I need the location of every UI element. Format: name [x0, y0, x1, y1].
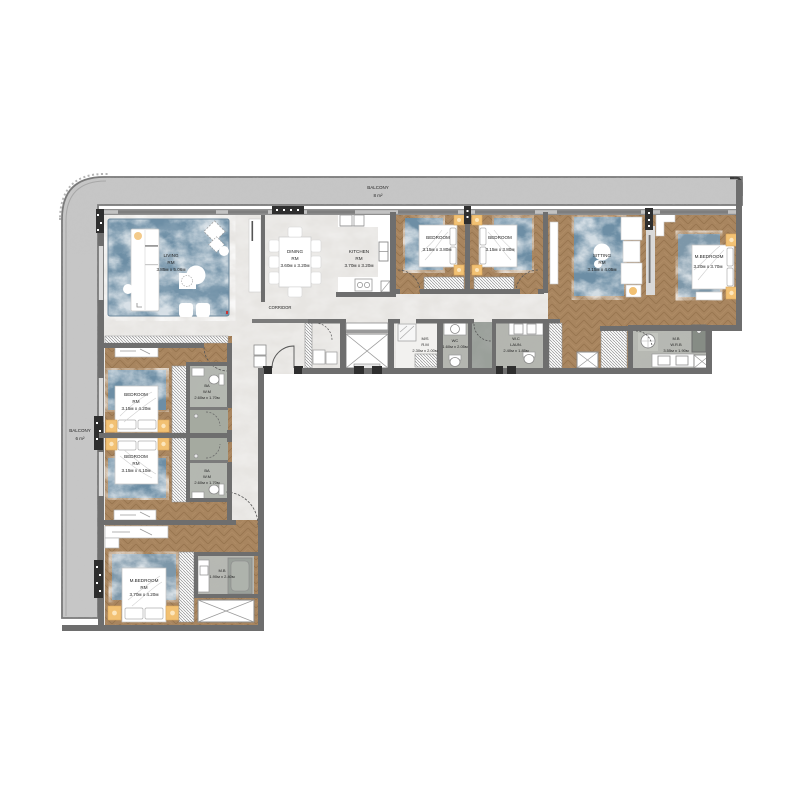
svg-text:KITCHEN: KITCHEN — [349, 249, 369, 254]
svg-text:RM: RM — [598, 260, 605, 265]
svg-text:BEDROOM: BEDROOM — [124, 392, 148, 397]
svg-text:BA: BA — [204, 468, 210, 473]
svg-text:1.60м x 2.05м: 1.60м x 2.05м — [442, 344, 468, 349]
svg-text:RM: RM — [132, 461, 139, 466]
svg-text:M.B: M.B — [218, 568, 225, 573]
svg-text:M.BEDROOM: M.BEDROOM — [130, 578, 159, 583]
svg-text:W.M: W.M — [203, 389, 211, 394]
svg-text:RM: RM — [132, 399, 139, 404]
svg-text:3.20м x 3.70м: 3.20м x 3.70м — [693, 264, 722, 269]
svg-text:LAUN.: LAUN. — [510, 342, 522, 347]
svg-text:2.60м x 1.70м: 2.60м x 1.70м — [194, 395, 220, 400]
svg-text:W.M: W.M — [203, 474, 211, 479]
svg-text:3.70м x 3.20м: 3.70м x 3.20м — [344, 263, 373, 268]
svg-text:3.70м x 4.20м: 3.70м x 4.20м — [129, 592, 158, 597]
svg-text:M.B: M.B — [672, 336, 679, 341]
svg-text:RM: RM — [140, 585, 147, 590]
svg-text:BEDROOM: BEDROOM — [124, 454, 148, 459]
svg-text:W.R.B: W.R.B — [670, 342, 682, 347]
svg-text:SITTING: SITTING — [593, 253, 612, 258]
svg-text:2.60м x 1.70м: 2.60м x 1.70м — [194, 480, 220, 485]
svg-text:3.60м x 3.20м: 3.60м x 3.20м — [280, 263, 309, 268]
svg-text:2.40м x 1.85м: 2.40м x 1.85м — [503, 348, 529, 353]
svg-text:BALCONY: BALCONY — [367, 185, 389, 190]
svg-text:8 m²: 8 m² — [374, 193, 384, 198]
svg-text:6 m²: 6 m² — [76, 436, 86, 441]
svg-text:W.C: W.C — [512, 336, 520, 341]
svg-text:3.15м x 4.20м: 3.15м x 4.20м — [121, 406, 150, 411]
svg-text:BEDROOM: BEDROOM — [488, 235, 512, 240]
svg-text:R.M: R.M — [421, 342, 428, 347]
svg-text:BALCONY: BALCONY — [69, 428, 91, 433]
svg-text:3.15м x 4.05м: 3.15м x 4.05м — [587, 267, 616, 272]
svg-text:BEDROOM: BEDROOM — [426, 235, 450, 240]
svg-text:1.90м x 2.40м: 1.90м x 2.40м — [209, 574, 235, 579]
svg-text:RM: RM — [355, 256, 362, 261]
svg-text:M.BEDROOM: M.BEDROOM — [695, 254, 724, 259]
svg-text:DINING: DINING — [287, 249, 304, 254]
svg-text:3.15м x 4.10м: 3.15м x 4.10м — [121, 468, 150, 473]
svg-text:2.30м x 2.00м: 2.30м x 2.00м — [412, 348, 438, 353]
svg-text:CORRIDOR: CORRIDOR — [269, 305, 292, 310]
svg-text:M/S: M/S — [421, 336, 428, 341]
svg-text:WC: WC — [452, 338, 459, 343]
svg-text:RM: RM — [291, 256, 298, 261]
svg-text:BA: BA — [204, 383, 210, 388]
svg-text:3.85м x 5.06м: 3.85м x 5.06м — [156, 267, 185, 272]
svg-text:3.55м x 1.90м: 3.55м x 1.90м — [663, 348, 689, 353]
svg-text:RM: RM — [167, 260, 174, 265]
svg-text:3.15м x 3.80м: 3.15м x 3.80м — [422, 247, 451, 252]
svg-text:3.15м x 3.80м: 3.15м x 3.80м — [485, 247, 514, 252]
svg-text:LIVING: LIVING — [163, 253, 178, 258]
